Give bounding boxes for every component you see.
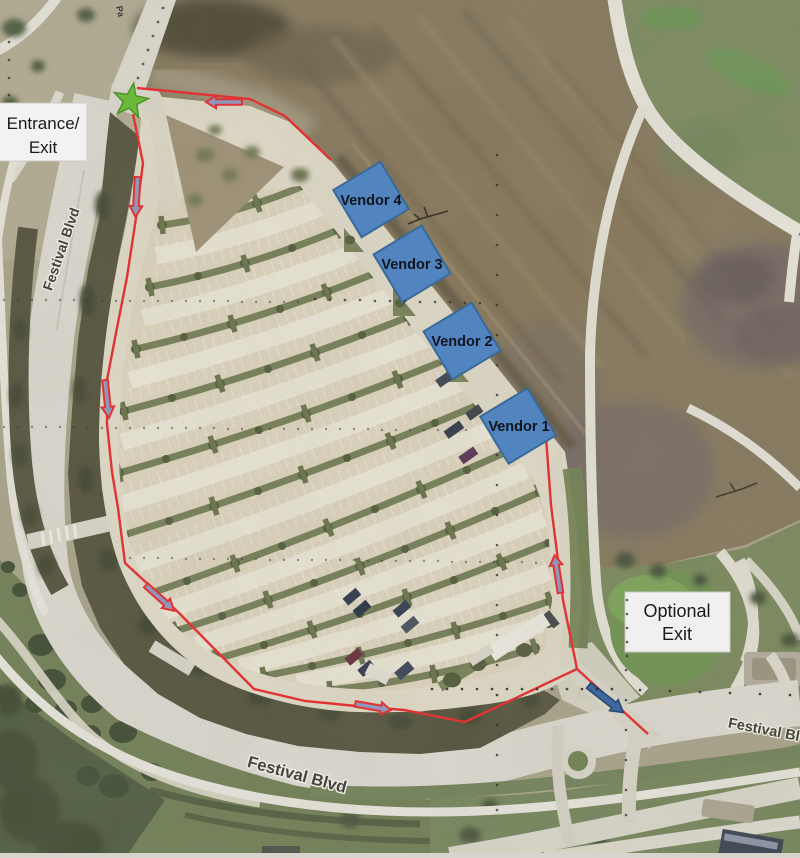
- svg-text:Exit: Exit: [662, 624, 692, 644]
- svg-text:Vendor 1: Vendor 1: [488, 419, 549, 435]
- svg-text:Vendor 3: Vendor 3: [381, 257, 442, 273]
- svg-text:Entrance/: Entrance/: [7, 114, 80, 133]
- svg-text:Optional: Optional: [643, 601, 710, 621]
- svg-text:Vendor 2: Vendor 2: [431, 334, 492, 350]
- svg-text:Exit: Exit: [29, 138, 58, 157]
- svg-text:Vendor 4: Vendor 4: [340, 193, 401, 209]
